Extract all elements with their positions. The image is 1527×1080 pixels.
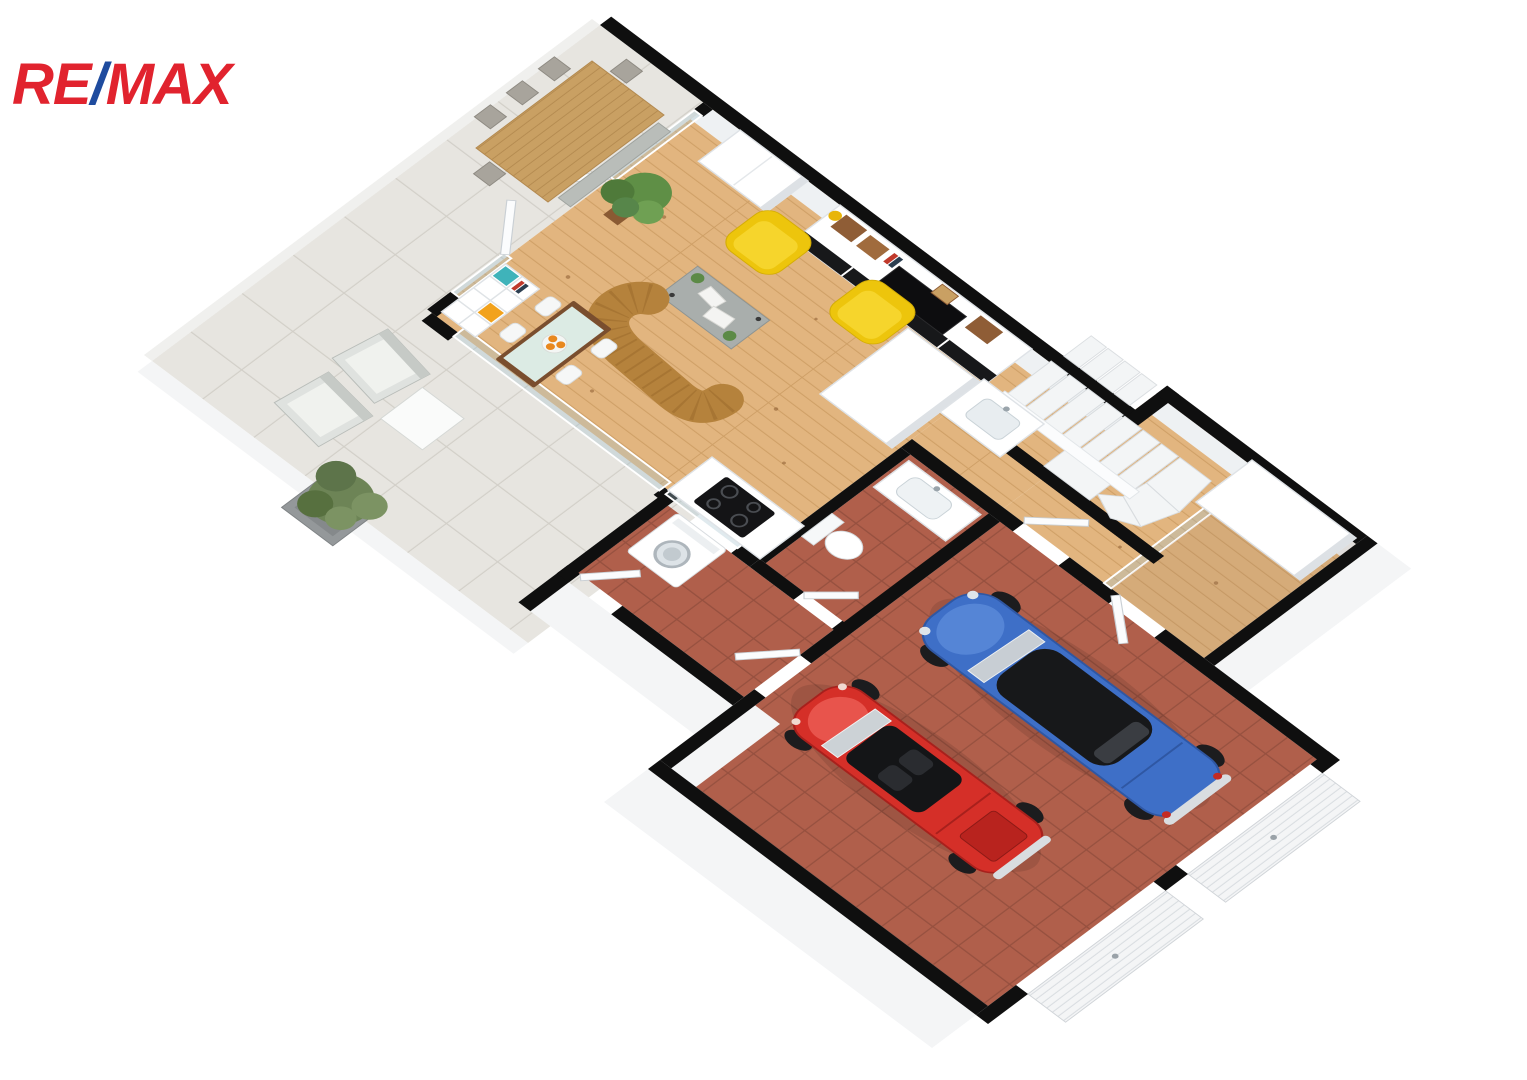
floor-plan-page: RE/MAX	[0, 0, 1527, 1080]
floor-plan-render	[0, 0, 1527, 1080]
bathroom-door	[804, 592, 858, 599]
